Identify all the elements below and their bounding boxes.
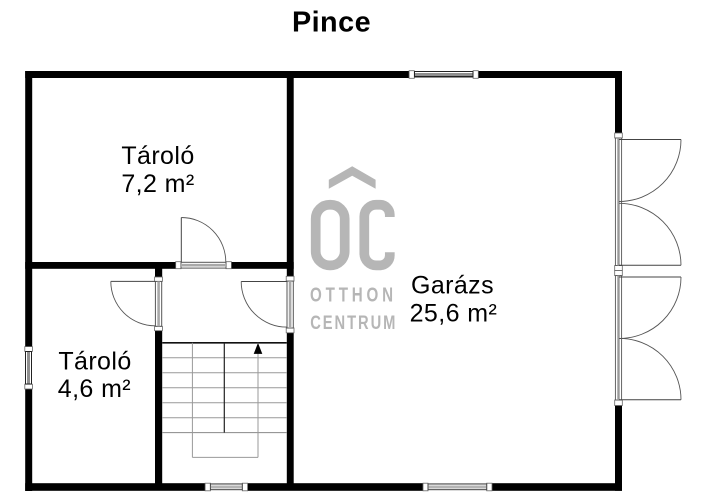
svg-text:Tároló: Tároló — [121, 142, 194, 170]
svg-text:4,6 m²: 4,6 m² — [58, 375, 131, 403]
svg-text:CENTRUM: CENTRUM — [310, 311, 397, 334]
svg-text:Pince: Pince — [292, 7, 371, 39]
svg-text:25,6 m²: 25,6 m² — [410, 299, 498, 327]
svg-text:Tároló: Tároló — [58, 347, 131, 375]
svg-text:Garázs: Garázs — [411, 271, 494, 299]
svg-text:7,2 m²: 7,2 m² — [121, 170, 194, 198]
svg-text:OTTHON: OTTHON — [310, 283, 397, 306]
